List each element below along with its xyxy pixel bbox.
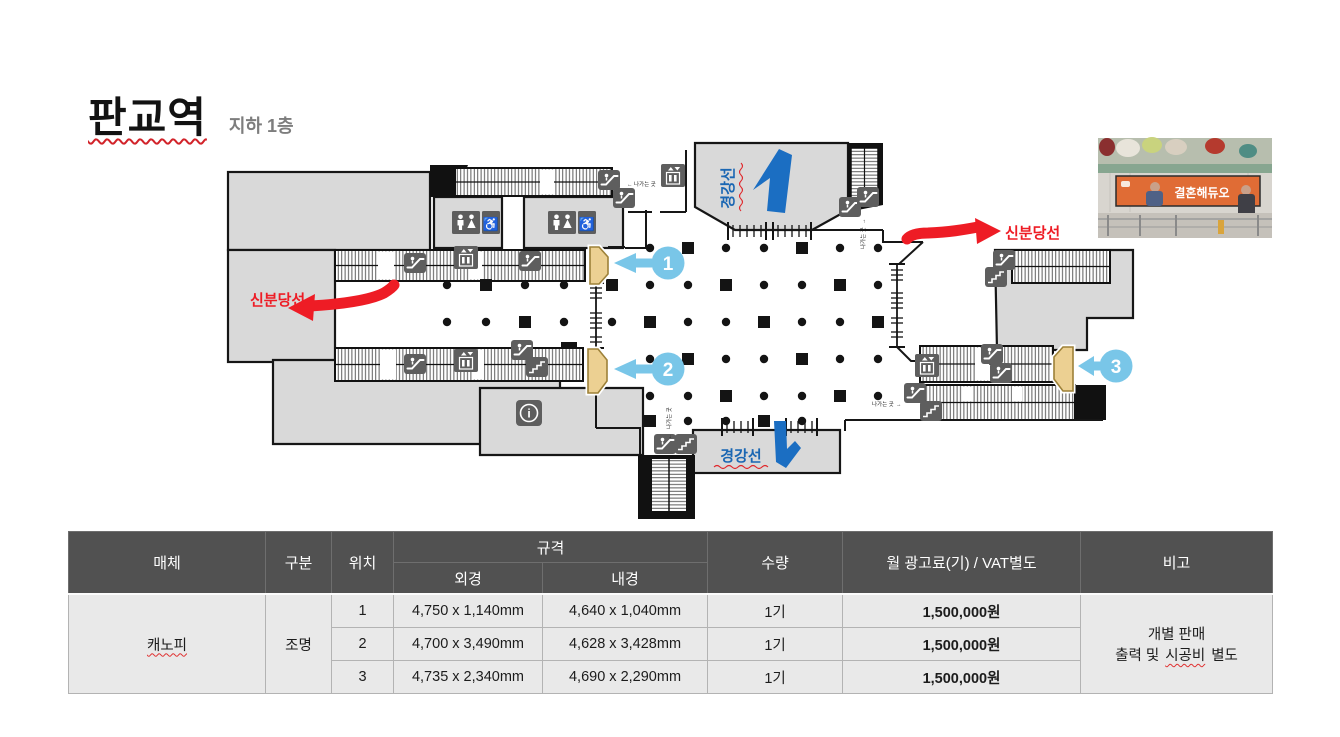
table-row: 캐노피 조명 1 4,750 x 1,140mm 4,640 x 1,040mm…: [69, 594, 1273, 628]
line-label-gyeonggang-bottom: 경강선: [720, 447, 761, 465]
escalator-icon: [598, 170, 620, 190]
stairs-icon: [675, 434, 697, 454]
svg-text:♿: ♿: [483, 217, 499, 232]
station-areas: [228, 143, 1133, 473]
col-media: 매체: [69, 532, 266, 595]
elevator-icon: [454, 246, 478, 269]
elevator-icon: [454, 349, 478, 372]
ad-spec-table: 매체 구분 위치 규격 수량 월 광고료(기) / VAT별도 비고 외경 내경…: [68, 531, 1273, 694]
floorplan: ♿♿i 신분당선 신분당선 경강선: [0, 0, 1340, 530]
exit-label: 나가는 곳: [634, 180, 656, 188]
outer-dim-cell: 4,750 x 1,140mm: [394, 594, 543, 628]
exit-label: 나가는 곳: [665, 407, 673, 429]
stairs-icon: [526, 357, 548, 377]
escalator-icon: [981, 344, 1003, 364]
escalator-icon: [857, 187, 879, 207]
stairs-icon: [985, 267, 1007, 287]
svg-text:←: ←: [627, 182, 633, 188]
restroom-icon: [452, 211, 480, 234]
inner-dim-cell: 4,628 x 3,428mm: [543, 628, 708, 661]
col-spec-outer: 외경: [394, 563, 543, 595]
media-cell: 캐노피: [69, 594, 266, 694]
escalator-icon: [404, 253, 426, 273]
qty-cell: 1기: [708, 594, 843, 628]
svg-text:♿: ♿: [579, 217, 595, 232]
qty-cell: 1기: [708, 661, 843, 694]
inner-dim-cell: 4,640 x 1,040mm: [543, 594, 708, 628]
exit-label: 나가는 곳: [872, 400, 894, 408]
elevator-icon: [661, 164, 685, 187]
shinbundang-right: 신분당선: [907, 218, 1060, 244]
escalator-icon: [990, 363, 1012, 383]
price-cell: 1,500,000원: [843, 628, 1081, 661]
exit-label: 나가는 곳: [859, 227, 867, 249]
price-cell: 1,500,000원: [843, 661, 1081, 694]
wheelchair-icon: ♿: [578, 211, 596, 234]
stairs-icon: [920, 401, 942, 421]
escalator-icon: [613, 188, 635, 208]
col-location: 위치: [332, 532, 394, 595]
wheelchair-icon: ♿: [482, 211, 500, 234]
outer-dim-cell: 4,735 x 2,340mm: [394, 661, 543, 694]
escalator-icon: [904, 383, 926, 403]
badge-number-3: 3: [1111, 357, 1122, 378]
svg-text:→: →: [861, 219, 867, 225]
svg-text:←: ←: [667, 434, 673, 440]
line-label-shinbundang-left: 신분당선: [250, 291, 305, 309]
qty-cell: 1기: [708, 628, 843, 661]
badge-number-2: 2: [663, 360, 674, 381]
price-cell: 1,500,000원: [843, 594, 1081, 628]
position-badge-3: 3: [1078, 350, 1133, 383]
outer-dim-cell: 4,700 x 3,490mm: [394, 628, 543, 661]
location-cell: 3: [332, 661, 394, 694]
note-cell: 개별 판매 출력 및시공비별도: [1081, 594, 1273, 694]
escalator-icon: [404, 354, 426, 374]
table-header-row: 매체 구분 위치 규격 수량 월 광고료(기) / VAT별도 비고: [69, 532, 1273, 563]
col-spec-inner: 내경: [543, 563, 708, 595]
photo-inset: 결혼해듀오: [1098, 137, 1272, 238]
svg-text:i: i: [527, 407, 530, 421]
info-icon: i: [516, 400, 542, 426]
location-cell: 2: [332, 628, 394, 661]
location-cell: 1: [332, 594, 394, 628]
badge-number-1: 1: [663, 254, 674, 275]
col-category: 구분: [266, 532, 332, 595]
col-note: 비고: [1081, 532, 1273, 595]
category-cell: 조명: [266, 594, 332, 694]
restroom-icon: [548, 211, 576, 234]
col-price: 월 광고료(기) / VAT별도: [843, 532, 1081, 595]
elevator-icon: [915, 354, 939, 377]
line-label-gyeonggang-top: 경강선: [719, 167, 737, 208]
line-label-shinbundang-right: 신분당선: [1005, 224, 1060, 242]
ad-banner-text: 결혼해듀오: [1174, 185, 1229, 200]
slide: 판교역지하 1층: [0, 0, 1340, 737]
col-spec: 규격: [394, 532, 708, 563]
escalator-icon: [519, 251, 541, 271]
col-qty: 수량: [708, 532, 843, 595]
svg-text:→: →: [896, 402, 902, 408]
inner-dim-cell: 4,690 x 2,290mm: [543, 661, 708, 694]
